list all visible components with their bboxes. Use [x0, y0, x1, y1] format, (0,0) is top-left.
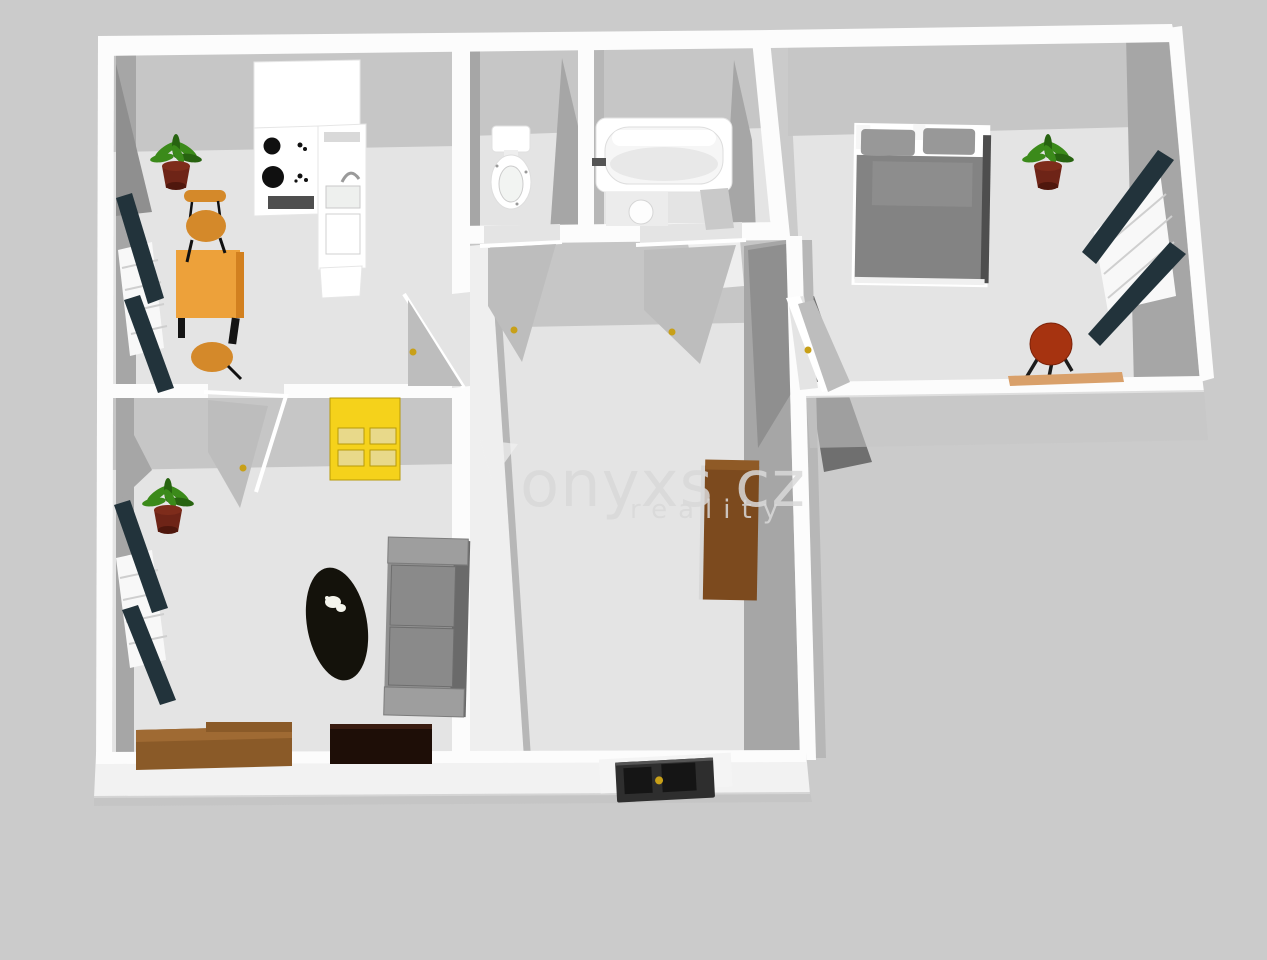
- tv-cabinet: [330, 724, 432, 764]
- door-handle: [805, 347, 812, 354]
- bedroom-south-wall-shadow: [806, 390, 1208, 448]
- floorplan-image: onyxs cz reality: [0, 0, 1267, 960]
- double-bed: [852, 123, 992, 287]
- sofa-cushion: [388, 627, 453, 687]
- oven-handle: [268, 196, 314, 209]
- west-wall: [96, 36, 114, 778]
- toilet: [491, 126, 531, 209]
- pillow: [923, 128, 975, 155]
- drawer: [338, 428, 364, 444]
- bath-faucet: [592, 158, 606, 166]
- sink-unit: [318, 124, 366, 298]
- watermark-tagline: reality: [630, 495, 789, 525]
- sofa-cushion: [390, 565, 456, 627]
- kitchen-counter: [254, 60, 360, 128]
- yellow-dresser: [330, 398, 400, 480]
- sofa-armrest: [388, 537, 469, 565]
- sofa-armrest: [384, 687, 465, 717]
- floorplan-svg: onyxs cz reality: [0, 0, 1267, 960]
- entrance-door: [599, 753, 733, 804]
- toilet-tank: [492, 126, 530, 152]
- burner: [264, 138, 281, 155]
- door-handle: [410, 349, 417, 356]
- pillow: [861, 129, 915, 156]
- stove: [254, 126, 318, 216]
- sink-basin: [326, 186, 360, 208]
- burner: [262, 166, 284, 188]
- wc-west-wall-face: [470, 50, 480, 232]
- drawer: [338, 450, 364, 466]
- door-handle: [240, 465, 247, 472]
- wc-bathroom-wall: [578, 42, 594, 236]
- sofa: [384, 537, 471, 717]
- drawer: [370, 450, 396, 466]
- drawer: [370, 428, 396, 444]
- door-handle: [669, 329, 676, 336]
- table-leg: [178, 318, 185, 338]
- watermark: onyxs cz reality: [480, 440, 806, 525]
- bathtub: [592, 118, 732, 192]
- door-handle: [511, 327, 518, 334]
